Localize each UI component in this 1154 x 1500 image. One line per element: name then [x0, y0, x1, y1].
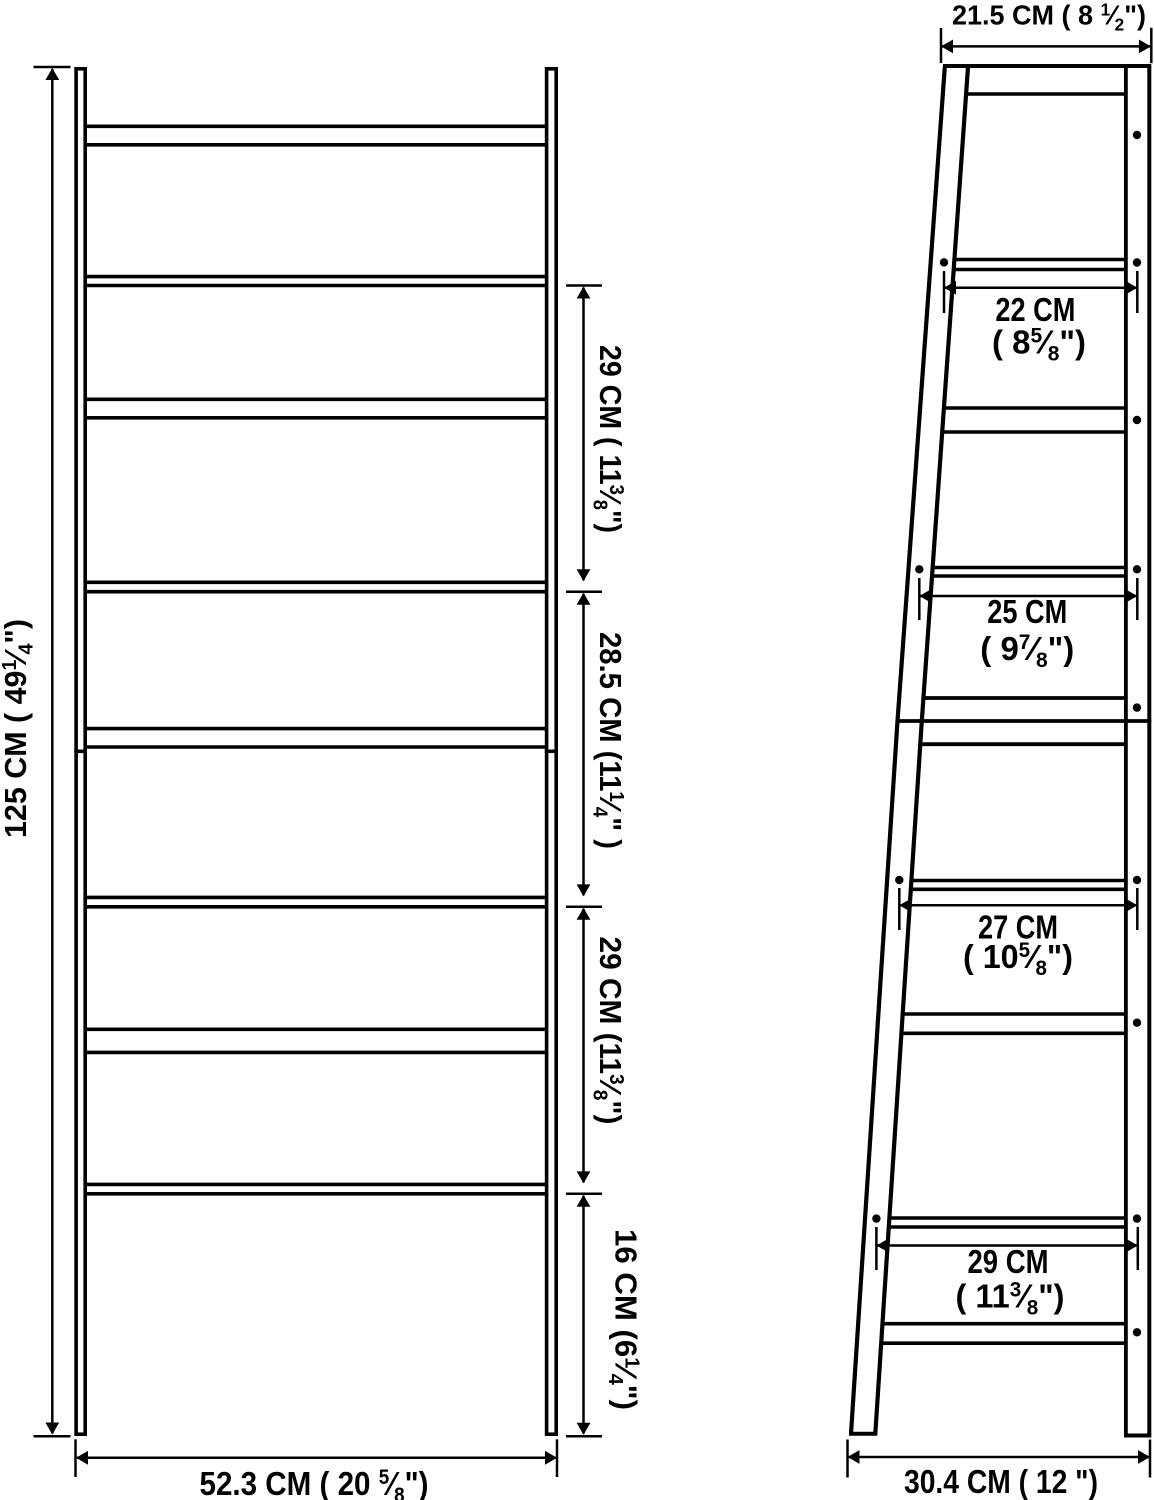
svg-text:52.3 CM ( 20 5⁄8"): 52.3 CM ( 20 5⁄8"): [200, 1465, 429, 1500]
svg-text:28.5 CM (111⁄4" ): 28.5 CM (111⁄4" ): [589, 632, 629, 849]
svg-text:( 105⁄8"): ( 105⁄8"): [963, 938, 1073, 980]
svg-text:29 CM: 29 CM: [968, 1243, 1049, 1280]
svg-text:25 CM: 25 CM: [987, 593, 1067, 630]
svg-text:30.4 CM ( 12 "): 30.4 CM ( 12 "): [904, 1463, 1098, 1500]
svg-text:22 CM: 22 CM: [995, 291, 1075, 328]
